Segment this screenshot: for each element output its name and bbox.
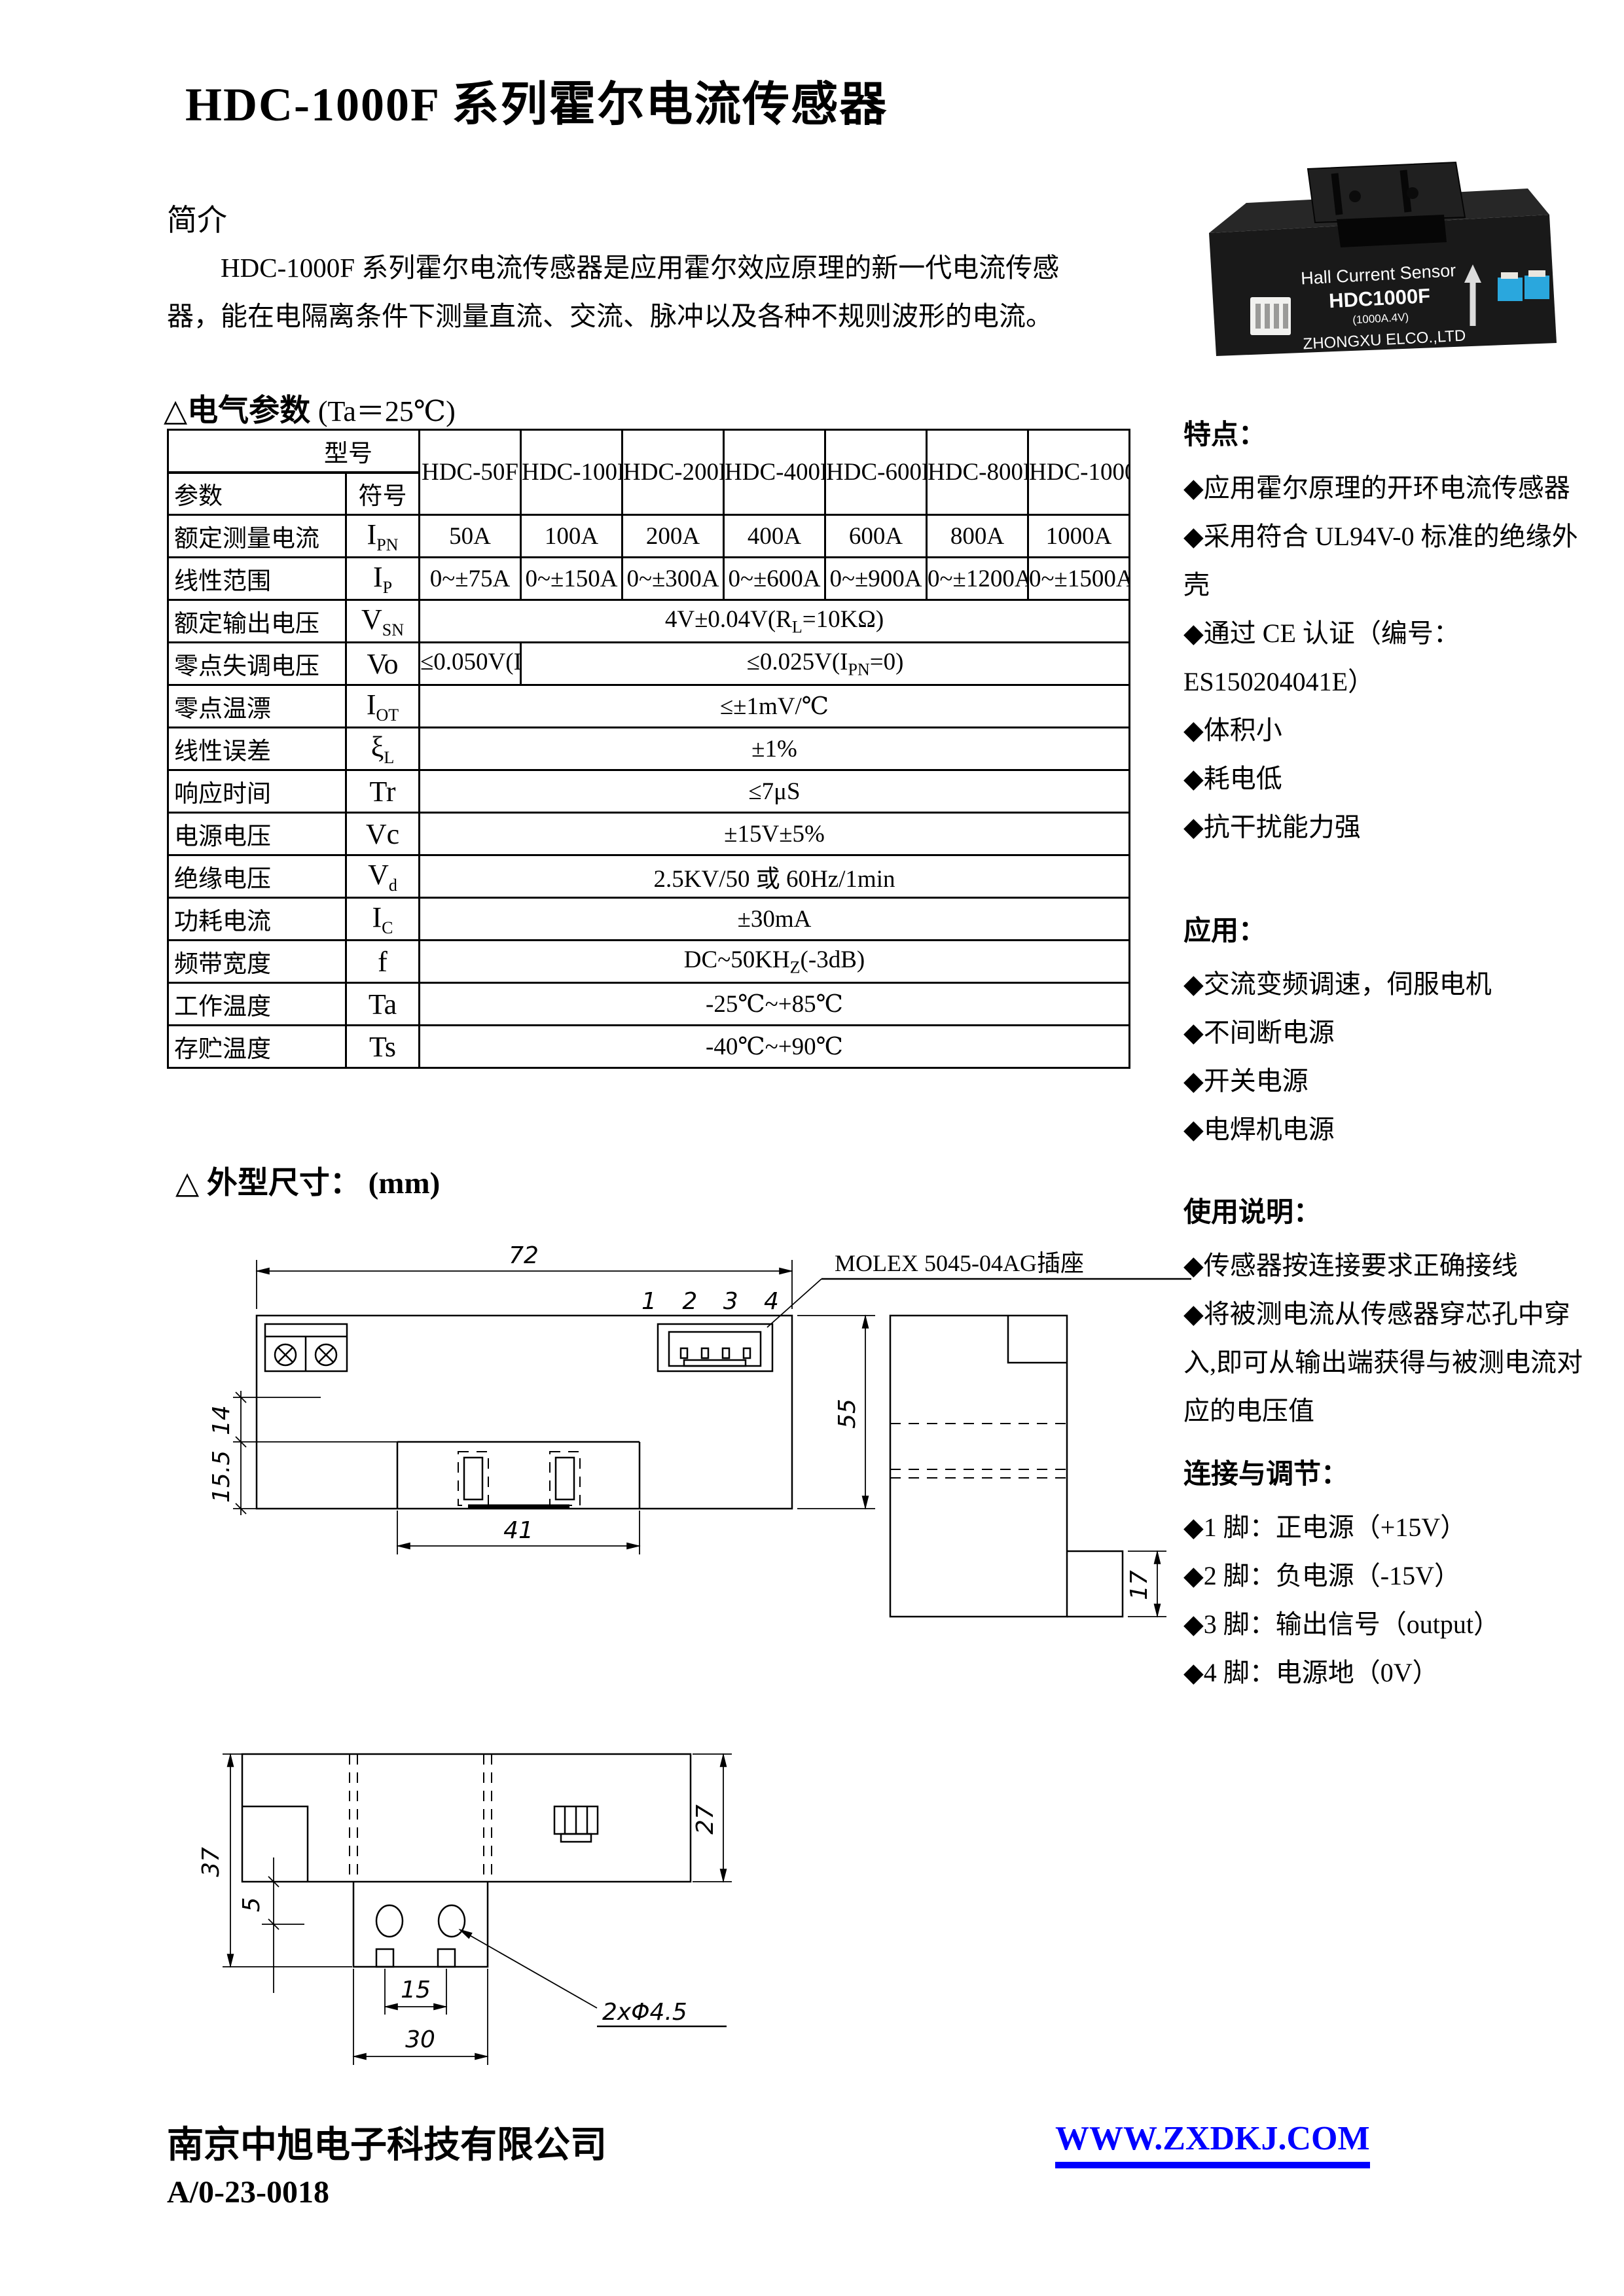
side-view — [890, 1316, 1123, 1617]
parameter-value: 600A — [825, 515, 927, 558]
table-header-row: 型号 HDC-50FHDC-100FHDC-200FHDC-400FHDC-60… — [168, 430, 1130, 473]
table-row: 线性范围IP0~±75A0~±150A0~±300A0~±600A0~±900A… — [168, 558, 1130, 600]
parameter-name: 线性范围 — [168, 558, 346, 600]
column-header-model: HDC-600F — [825, 430, 927, 515]
parameter-value: ≤0.050V(IPN=0) — [420, 643, 521, 685]
dimension-drawing: 72 55 41 14 15.5 17 1 2 3 4 MOLEX 5045-0… — [196, 1198, 1211, 2166]
dim-30: 30 — [405, 2026, 435, 2053]
parameter-value: 0~±1200A — [927, 558, 1028, 600]
column-header-model: HDC-200F — [623, 430, 724, 515]
company-name: 南京中旭电子科技有限公司 — [167, 2115, 607, 2168]
list-item: ◆不间断电源 — [1183, 1009, 1600, 1057]
parameter-name: 额定输出电压 — [168, 600, 346, 643]
parameter-name: 电源电压 — [168, 813, 346, 855]
connector-pin — [1265, 304, 1270, 329]
parameter-value: -25℃~+85℃ — [420, 983, 1130, 1026]
table-row: 频带宽度fDC~50KHZ(-3dB) — [168, 941, 1130, 983]
parameter-name: 零点温漂 — [168, 685, 346, 728]
list-item: ◆抗干扰能力强 — [1183, 803, 1600, 852]
corner-param-label: 参数 — [168, 473, 346, 515]
parameter-value: 50A — [420, 515, 521, 558]
dim-5: 5 — [238, 1897, 265, 1912]
parameter-value: 4V±0.04V(RL=10KΩ) — [420, 600, 1130, 643]
list-item: ◆3 脚：输出信号（output） — [1183, 1600, 1600, 1649]
applications-list: ◆交流变频调速，伺服电机◆不间断电源◆开关电源◆电焊机电源 — [1183, 960, 1600, 1154]
table-row: 存贮温度Ts-40℃~+90℃ — [168, 1026, 1130, 1068]
parameter-symbol: Vd — [346, 855, 420, 898]
dim-17: 17 — [1126, 1570, 1153, 1600]
dim-41: 41 — [503, 1517, 533, 1544]
table-row: 零点失调电压Vo≤0.050V(IPN=0)≤0.025V(IPN=0) — [168, 643, 1130, 685]
terminal-block — [1498, 278, 1523, 301]
list-item: ◆交流变频调速，伺服电机 — [1183, 960, 1600, 1009]
parameter-value: -40℃~+90℃ — [420, 1026, 1130, 1068]
list-item: ◆体积小 — [1183, 706, 1600, 755]
dim-72: 72 — [509, 1242, 539, 1269]
parameter-symbol: IP — [346, 558, 420, 600]
dimension-lines — [223, 1260, 1191, 2065]
dim-15-5: 15.5 — [208, 1450, 235, 1503]
parameter-symbol: IC — [346, 898, 420, 941]
parameter-symbol: Ta — [346, 983, 420, 1026]
list-item: ◆4 脚：电源地（0V） — [1183, 1649, 1600, 1697]
dim-27: 27 — [692, 1804, 719, 1835]
product-photo: Hall Current Sensor HDC1000F (1000A.4V) … — [1186, 156, 1574, 367]
parameter-symbol: VSN — [346, 600, 420, 643]
parameter-value: ±1% — [420, 728, 1130, 770]
table-row: 电源电压Vc±15V±5% — [168, 813, 1130, 855]
parameter-value: 0~±75A — [420, 558, 521, 600]
parameter-value: ±30mA — [420, 898, 1130, 941]
dim-14: 14 — [208, 1405, 235, 1435]
applications-heading: 应用： — [1183, 908, 1600, 948]
parameter-value: 400A — [724, 515, 825, 558]
features-heading: 特点： — [1183, 412, 1600, 452]
clamp-hole — [1407, 187, 1418, 199]
dim-15: 15 — [401, 1977, 431, 2003]
connection-section: 连接与调节： ◆1 脚：正电源（+15V）◆2 脚：负电源（-15V）◆3 脚：… — [1183, 1452, 1600, 1697]
connector-pin — [1283, 304, 1288, 329]
parameter-name: 存贮温度 — [168, 1026, 346, 1068]
parameter-symbol: Ts — [346, 1026, 420, 1068]
parameter-value: 200A — [623, 515, 724, 558]
electrical-heading-text: △电气参数 — [164, 394, 310, 428]
parameter-name: 线性误差 — [168, 728, 346, 770]
page-title: HDC-1000F 系列霍尔电流传感器 — [185, 65, 888, 134]
table-row: 线性误差ξL±1% — [168, 728, 1130, 770]
list-item: ◆应用霍尔原理的开环电流传感器 — [1183, 464, 1600, 512]
parameter-value: ≤0.025V(IPN=0) — [521, 643, 1130, 685]
features-list: ◆应用霍尔原理的开环电流传感器◆采用符合 UL94V-0 标准的绝缘外壳◆通过 … — [1183, 464, 1600, 852]
parameter-value: DC~50KHZ(-3dB) — [420, 941, 1130, 983]
parameter-symbol: IPN — [346, 515, 420, 558]
list-item: ◆耗电低 — [1183, 755, 1600, 803]
parameter-value: ≤7μS — [420, 770, 1130, 813]
parameter-symbol: ξL — [346, 728, 420, 770]
dim-55: 55 — [834, 1399, 861, 1429]
parameter-symbol: IOT — [346, 685, 420, 728]
applications-section: 应用： ◆交流变频调速，伺服电机◆不间断电源◆开关电源◆电焊机电源 — [1183, 908, 1600, 1154]
parameter-symbol: Tr — [346, 770, 420, 813]
features-section: 特点： ◆应用霍尔原理的开环电流传感器◆采用符合 UL94V-0 标准的绝缘外壳… — [1183, 412, 1600, 852]
usage-heading: 使用说明： — [1183, 1190, 1600, 1230]
parameter-name: 响应时间 — [168, 770, 346, 813]
usage-section: 使用说明： ◆传感器按连接要求正确接线◆将被测电流从传感器穿芯孔中穿入,即可从输… — [1183, 1190, 1600, 1435]
dimensions-unit: (mm) — [369, 1166, 441, 1200]
parameter-value: ±15V±5% — [420, 813, 1130, 855]
terminal-screw — [1501, 272, 1518, 279]
table-row: 绝缘电压Vd2.5KV/50 或 60Hz/1min — [168, 855, 1130, 898]
clamp-hole — [1349, 190, 1361, 202]
document-number: A/0-23-0018 — [167, 2174, 329, 2210]
website-link[interactable]: WWW.ZXDKJ.COM — [1055, 2119, 1370, 2168]
bottom-view — [242, 1754, 691, 1967]
column-header-model: HDC-100F — [521, 430, 623, 515]
parameter-symbol: Vo — [346, 643, 420, 685]
parameter-name: 额定测量电流 — [168, 515, 346, 558]
connection-list: ◆1 脚：正电源（+15V）◆2 脚：负电源（-15V）◆3 脚：输出信号（ou… — [1183, 1503, 1600, 1697]
column-header-model: HDC-50F — [420, 430, 521, 515]
connector-pin — [1274, 304, 1279, 329]
column-header-model: HDC-800F — [927, 430, 1028, 515]
connector-pin — [1255, 304, 1261, 329]
parameter-value: 0~±600A — [724, 558, 825, 600]
parameter-value: 800A — [927, 515, 1028, 558]
parameter-value: 100A — [521, 515, 623, 558]
list-item: ◆2 脚：负电源（-15V） — [1183, 1552, 1600, 1600]
table-row: 工作温度Ta-25℃~+85℃ — [168, 983, 1130, 1026]
intro-paragraph: HDC-1000F 系列霍尔电流传感器是应用霍尔效应原理的新一代电流传感器，能在… — [167, 243, 1083, 340]
table-row: 响应时间Tr≤7μS — [168, 770, 1130, 813]
column-header-model: HDC-400F — [724, 430, 825, 515]
list-item: ◆通过 CE 认证（编号：ES150204041E） — [1183, 609, 1600, 706]
sensor-aperture — [1337, 215, 1447, 247]
parameter-name: 频带宽度 — [168, 941, 346, 983]
terminal-block — [1525, 276, 1549, 299]
connection-heading: 连接与调节： — [1183, 1452, 1600, 1492]
table-row: 功耗电流IC±30mA — [168, 898, 1130, 941]
parameter-value: ≤±1mV/℃ — [420, 685, 1130, 728]
parameter-value: 2.5KV/50 或 60Hz/1min — [420, 855, 1130, 898]
list-item: ◆电焊机电源 — [1183, 1105, 1600, 1154]
table-row: 额定输出电压VSN4V±0.04V(RL=10KΩ) — [168, 600, 1130, 643]
parameter-value: 1000A — [1028, 515, 1130, 558]
dim-37: 37 — [198, 1847, 225, 1877]
table-row: 额定测量电流IPN50A100A200A400A600A800A1000A — [168, 515, 1130, 558]
list-item: ◆传感器按连接要求正确接线 — [1183, 1242, 1600, 1290]
parameter-name: 功耗电流 — [168, 898, 346, 941]
corner-symbol-label: 符号 — [346, 473, 420, 515]
holes-label: 2xΦ4.5 — [602, 1999, 687, 2026]
sensor-clamp-block — [1308, 162, 1465, 223]
terminal-screw — [1528, 270, 1545, 277]
list-item: ◆采用符合 UL94V-0 标准的绝缘外壳 — [1183, 512, 1600, 609]
table-row: 零点温漂IOT≤±1mV/℃ — [168, 685, 1130, 728]
parameter-value: 0~±900A — [825, 558, 927, 600]
electrical-heading-condition: (Ta＝25℃) — [318, 395, 456, 427]
molex-connector-label: MOLEX 5045-04AG插座 — [835, 1250, 1084, 1276]
list-item: ◆开关电源 — [1183, 1057, 1600, 1105]
corner-model-label: 型号 — [168, 430, 420, 473]
dimensions-heading-text: △ 外型尺寸： — [175, 1166, 361, 1200]
parameter-value: 0~±1500A — [1028, 558, 1130, 600]
dimensions-heading: △ 外型尺寸： (mm) — [175, 1157, 440, 1202]
front-view — [257, 1316, 792, 1509]
clamp-slot — [1335, 173, 1339, 215]
datasheet-page: HDC-1000F 系列霍尔电流传感器 简介 HDC-1000F 系列霍尔电流传… — [0, 0, 1624, 2296]
list-item: ◆将被测电流从传感器穿芯孔中穿入,即可从输出端获得与被测电流对应的电压值 — [1183, 1290, 1600, 1435]
electrical-parameters-table: 型号 HDC-50FHDC-100FHDC-200FHDC-400FHDC-60… — [167, 429, 1130, 1069]
parameter-symbol: f — [346, 941, 420, 983]
parameter-value: 0~±150A — [521, 558, 623, 600]
electrical-parameters-heading: △电气参数 (Ta＝25℃) — [164, 385, 456, 430]
usage-list: ◆传感器按连接要求正确接线◆将被测电流从传感器穿芯孔中穿入,即可从输出端获得与被… — [1183, 1242, 1600, 1435]
parameter-value: 0~±300A — [623, 558, 724, 600]
parameter-symbol: Vc — [346, 813, 420, 855]
intro-heading: 简介 — [167, 196, 227, 240]
parameter-name: 工作温度 — [168, 983, 346, 1026]
pin-numbers: 1 2 3 4 — [641, 1288, 788, 1315]
column-header-model: HDC-1000F — [1028, 430, 1130, 515]
list-item: ◆1 脚：正电源（+15V） — [1183, 1503, 1600, 1552]
parameter-name: 绝缘电压 — [168, 855, 346, 898]
parameter-name: 零点失调电压 — [168, 643, 346, 685]
